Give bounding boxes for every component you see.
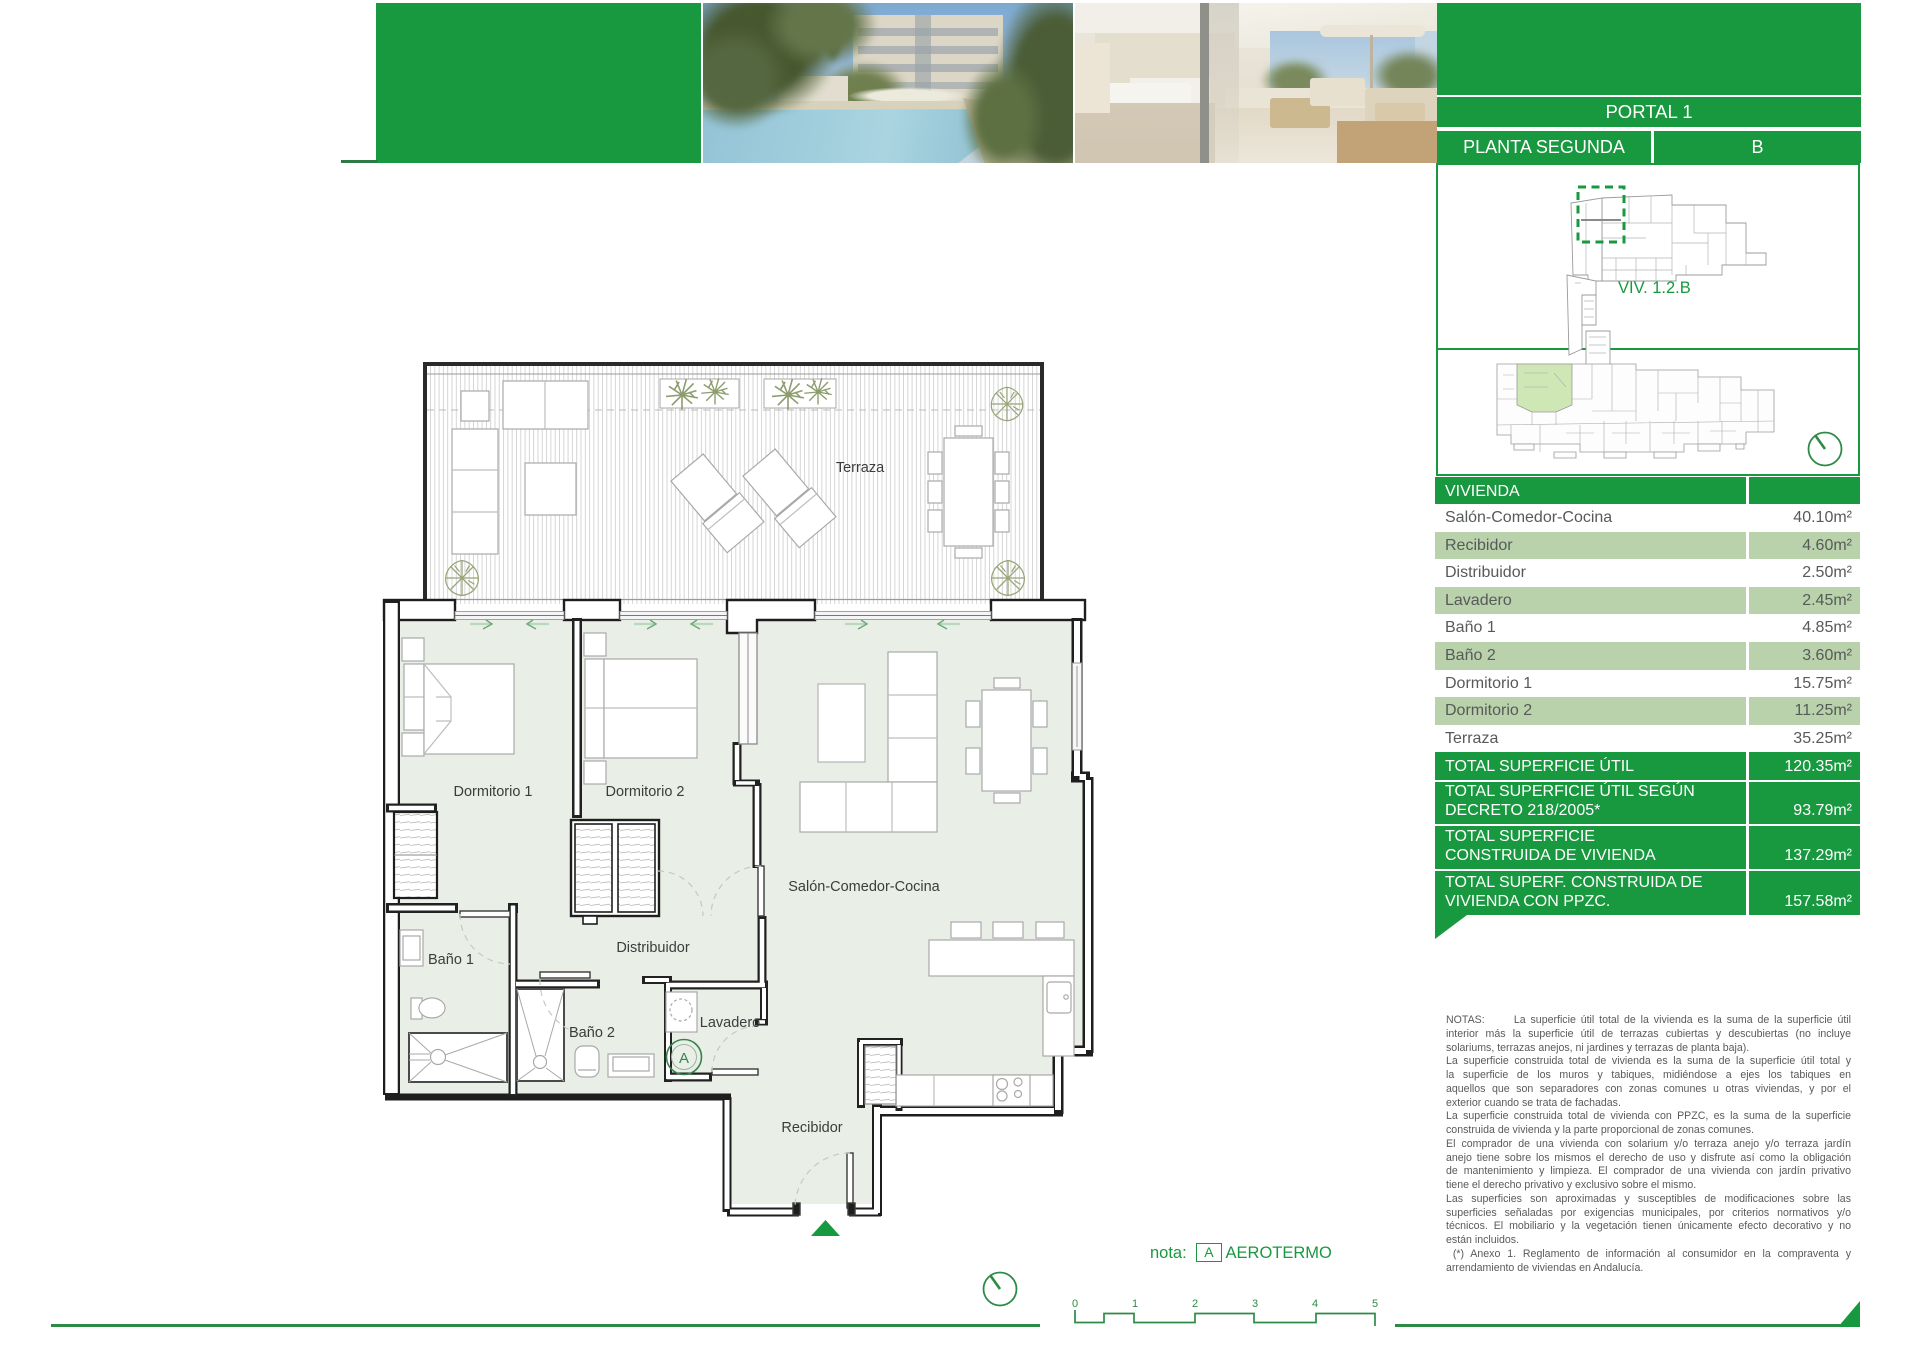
svg-text:Terraza: Terraza — [836, 460, 885, 476]
svg-text:Baño 1: Baño 1 — [428, 952, 474, 968]
svg-text:0: 0 — [1072, 1298, 1078, 1310]
svg-text:Distribuidor: Distribuidor — [616, 940, 689, 956]
svg-text:A: A — [679, 1050, 689, 1067]
svg-text:Recibidor: Recibidor — [781, 1120, 842, 1136]
svg-text:1: 1 — [1132, 1298, 1138, 1310]
svg-text:Dormitorio 2: Dormitorio 2 — [606, 784, 685, 800]
svg-text:Lavadero: Lavadero — [700, 1015, 760, 1031]
svg-text:5: 5 — [1372, 1298, 1378, 1310]
svg-text:Salón-Comedor-Cocina: Salón-Comedor-Cocina — [788, 879, 940, 895]
svg-text:4: 4 — [1312, 1298, 1318, 1310]
svg-text:Baño 2: Baño 2 — [569, 1025, 615, 1041]
svg-text:3: 3 — [1252, 1298, 1258, 1310]
svg-text:2: 2 — [1192, 1298, 1198, 1310]
svg-text:Dormitorio 1: Dormitorio 1 — [454, 784, 533, 800]
